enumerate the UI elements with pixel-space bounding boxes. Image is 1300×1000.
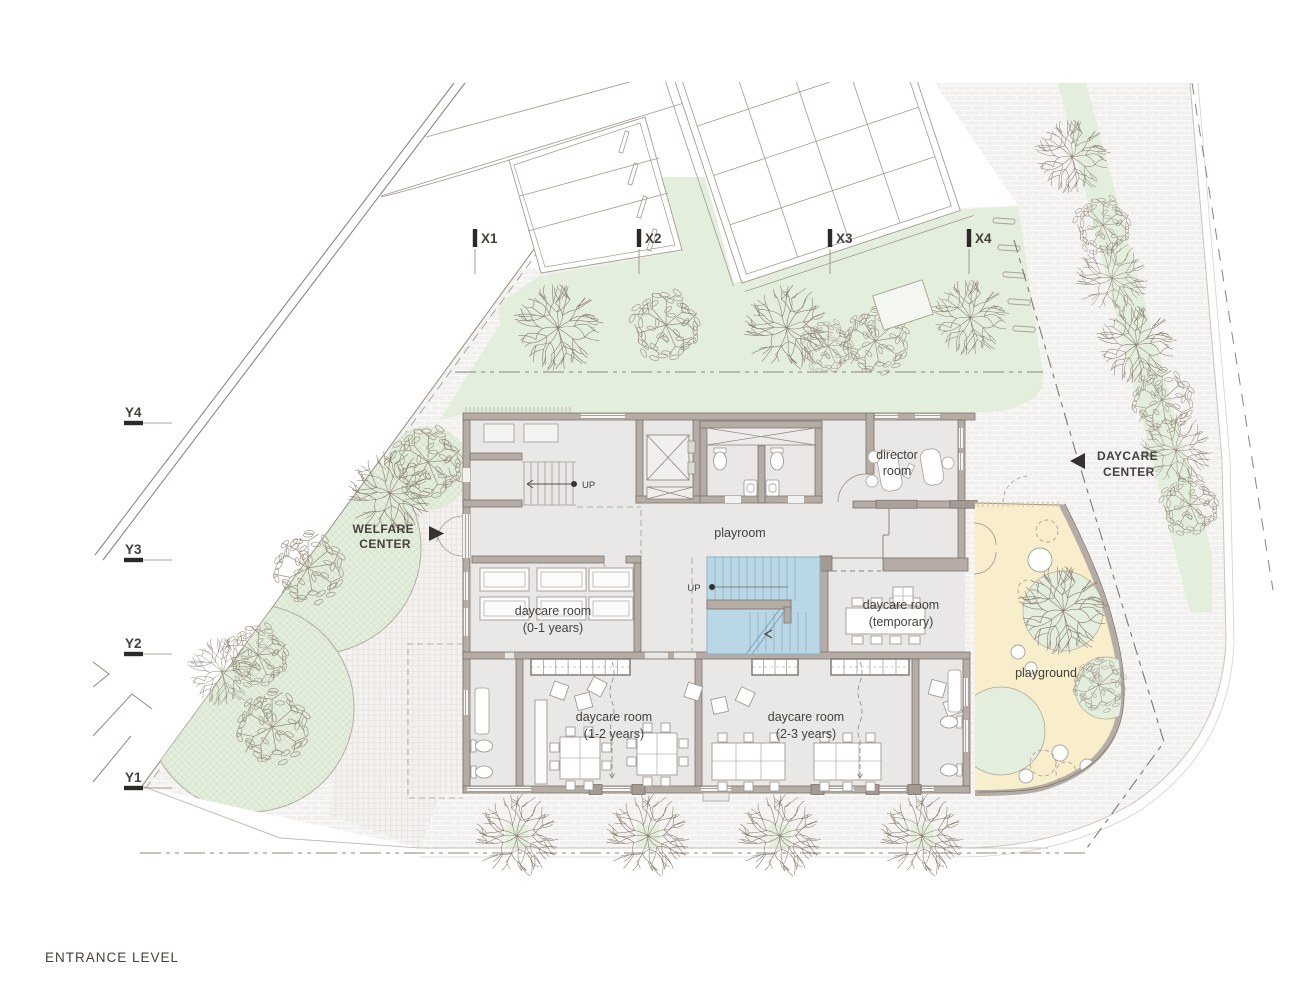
svg-text:director: director: [876, 448, 918, 462]
svg-text:playroom: playroom: [714, 526, 765, 540]
svg-text:(1-2 years): (1-2 years): [584, 727, 644, 741]
svg-text:X4: X4: [975, 231, 992, 246]
svg-text:X3: X3: [836, 231, 853, 246]
svg-text:ENTRANCE LEVEL: ENTRANCE LEVEL: [45, 950, 179, 965]
svg-text:(temporary): (temporary): [869, 615, 934, 629]
svg-text:(0-1 years): (0-1 years): [523, 621, 583, 635]
svg-text:X1: X1: [481, 231, 498, 246]
svg-text:Y1: Y1: [125, 770, 142, 785]
svg-text:daycare room: daycare room: [515, 604, 591, 618]
svg-text:room: room: [883, 464, 911, 478]
svg-text:CENTER: CENTER: [359, 537, 411, 551]
svg-text:daycare room: daycare room: [576, 710, 652, 724]
svg-text:daycare room: daycare room: [768, 710, 844, 724]
svg-text:X2: X2: [645, 231, 662, 246]
svg-text:Y4: Y4: [125, 405, 142, 420]
svg-text:(2-3 years): (2-3 years): [776, 727, 836, 741]
svg-text:Y2: Y2: [125, 636, 142, 651]
svg-text:UP: UP: [687, 583, 700, 594]
svg-text:UP: UP: [582, 480, 595, 491]
svg-text:Y3: Y3: [125, 542, 142, 557]
svg-text:playground: playground: [1015, 666, 1077, 680]
svg-text:CENTER: CENTER: [1103, 465, 1155, 479]
svg-text:daycare room: daycare room: [863, 598, 939, 612]
svg-text:WELFARE: WELFARE: [353, 522, 414, 536]
svg-text:DAYCARE: DAYCARE: [1097, 449, 1158, 463]
